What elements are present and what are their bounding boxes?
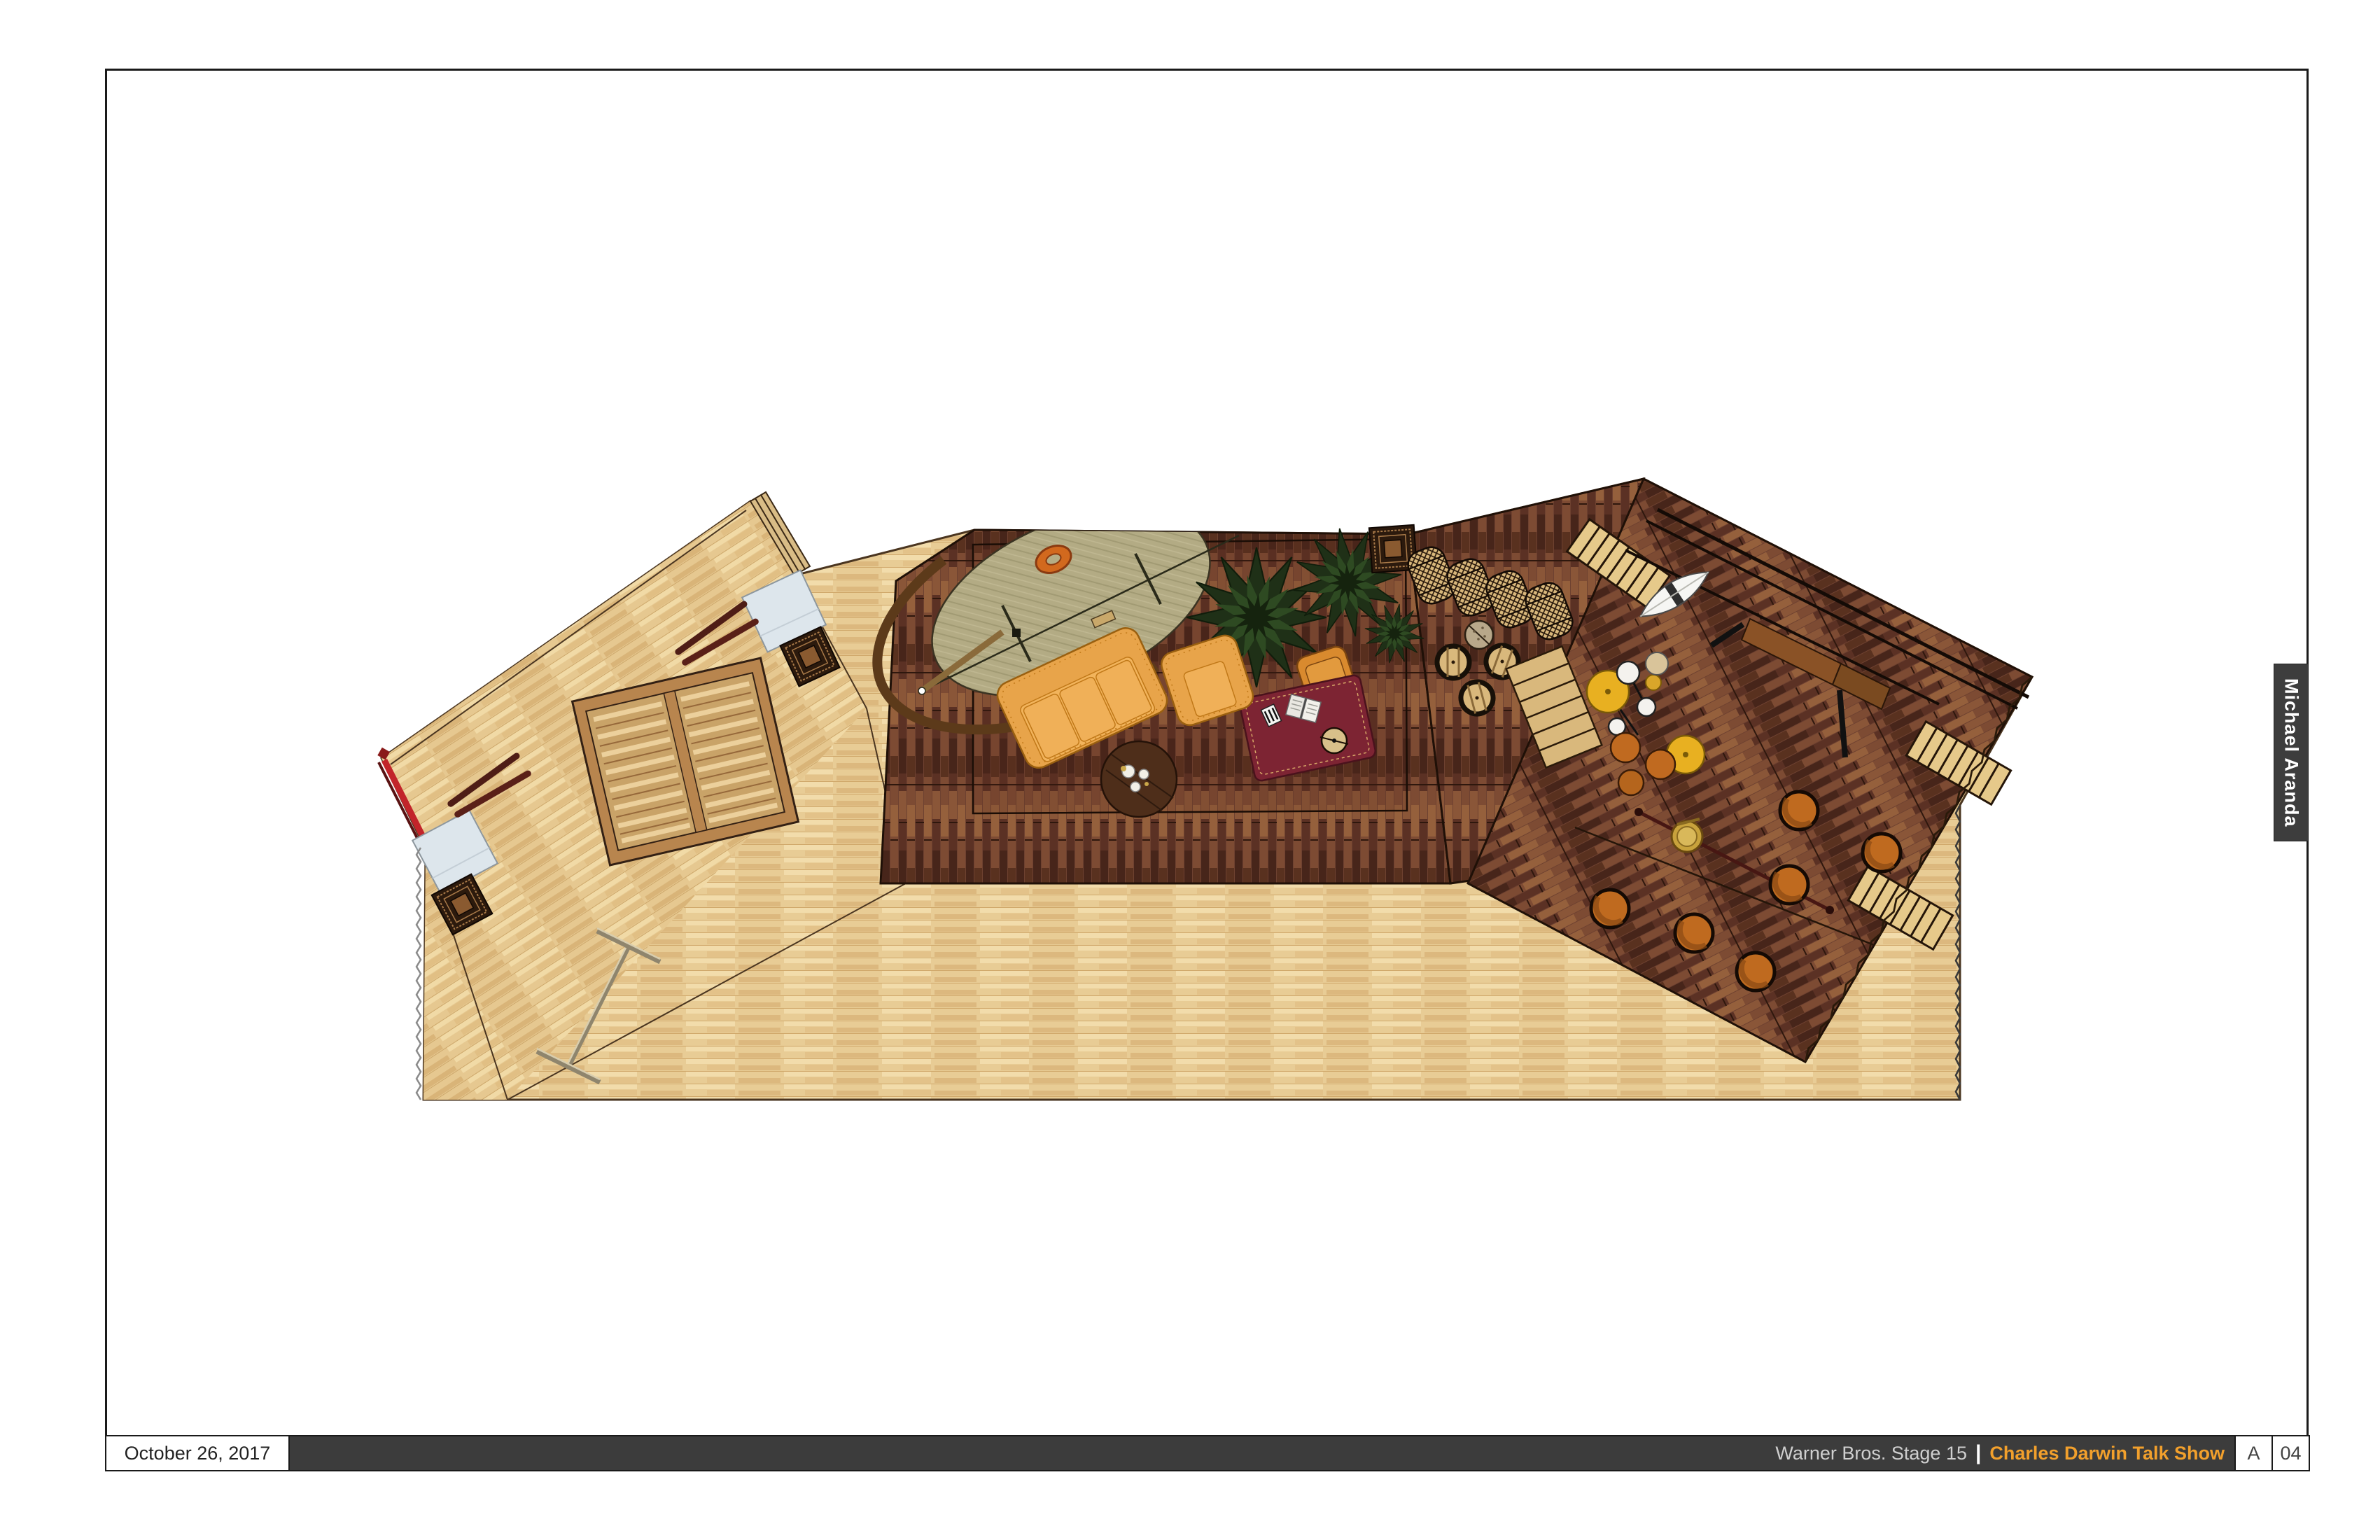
separator: | [1975,1441,1981,1465]
sheet-letter-box: A [2234,1436,2271,1470]
title-bar: Warner Bros. Stage 15 | Charles Darwin T… [290,1436,2234,1470]
sheet-border [105,69,2309,1469]
designer-name: Michael Aranda [2281,678,2302,827]
sheet-letter: A [2247,1443,2260,1464]
show-title: Charles Darwin Talk Show [1989,1443,2225,1464]
drafting-sheet: Michael Aranda October 26, 2017 Warner B… [0,0,2380,1540]
venue-label: Warner Bros. Stage 15 [1775,1443,1967,1464]
sheet-date: October 26, 2017 [125,1443,271,1464]
designer-tab: Michael Aranda [2274,664,2309,841]
sheet-number-box: 04 [2271,1436,2309,1470]
title-block: October 26, 2017 Warner Bros. Stage 15 |… [105,1435,2310,1471]
sheet-number: 04 [2280,1443,2301,1464]
date-box: October 26, 2017 [106,1436,290,1470]
